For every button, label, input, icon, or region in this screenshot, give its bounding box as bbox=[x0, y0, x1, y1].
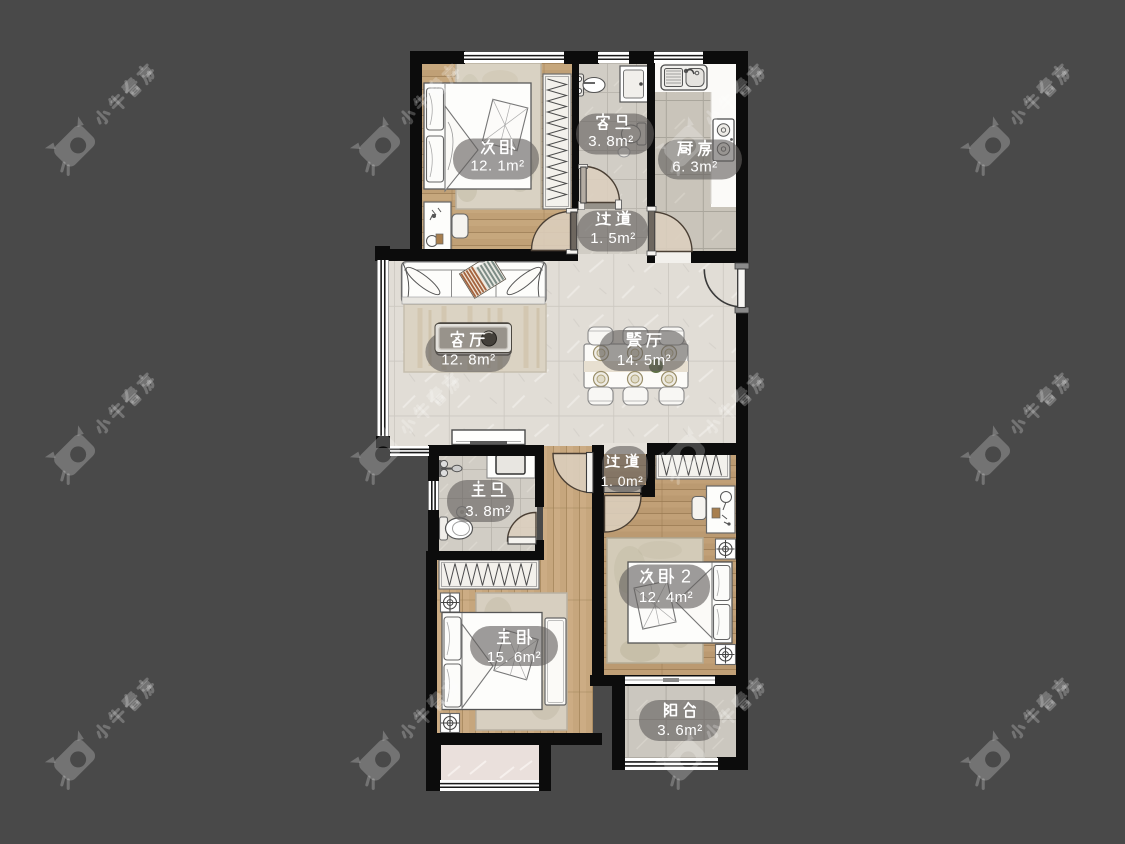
svg-text:3. 8m²: 3. 8m² bbox=[465, 503, 511, 520]
svg-text:12. 8m²: 12. 8m² bbox=[441, 352, 495, 369]
svg-text:1. 5m²: 1. 5m² bbox=[590, 230, 636, 247]
svg-text:14. 5m²: 14. 5m² bbox=[617, 352, 671, 369]
svg-text:15. 6m²: 15. 6m² bbox=[487, 649, 541, 666]
svg-text:1. 0m²: 1. 0m² bbox=[601, 473, 644, 489]
svg-text:3. 6m²: 3. 6m² bbox=[657, 722, 703, 739]
svg-text:12. 1m²: 12. 1m² bbox=[470, 158, 524, 175]
svg-text:12. 4m²: 12. 4m² bbox=[639, 589, 693, 606]
svg-text:2: 2 bbox=[681, 567, 691, 587]
svg-text:3. 8m²: 3. 8m² bbox=[588, 133, 634, 150]
